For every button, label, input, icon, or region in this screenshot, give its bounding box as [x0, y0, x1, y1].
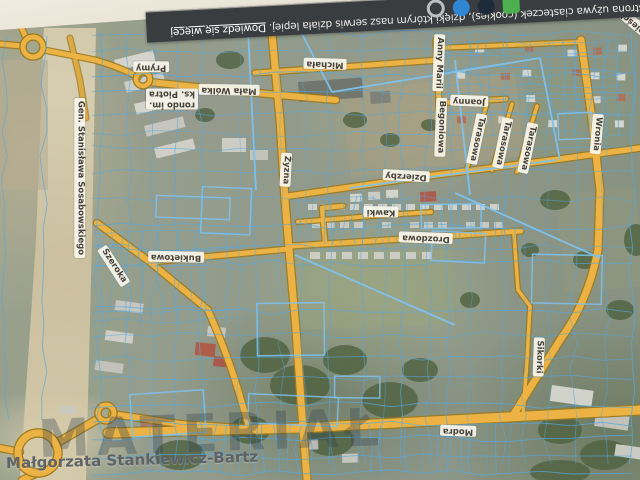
- screen-photo: Gen. Stanisława SosabowskiegoSzerokaBuki…: [0, 0, 640, 480]
- aerial-map[interactable]: Gen. Stanisława SosabowskiegoSzerokaBuki…: [0, 0, 640, 480]
- street-label-kawki: Kawki: [364, 206, 399, 217]
- green-app-icon[interactable]: [502, 0, 520, 14]
- street-label-michala: Michała: [303, 58, 346, 70]
- dark-circle-icon[interactable]: [477, 0, 495, 15]
- street-label-bukietowa: Bukietowa: [148, 251, 205, 262]
- street-label-gen-stanislawa-sosabowskiego: Gen. Stanisława Sosabowskiego: [75, 98, 86, 258]
- street-label-rondo-ks-piotra: rondo im.ks. Piotra: [146, 89, 198, 110]
- street-label-prymy: Prymy: [133, 62, 169, 73]
- street-label-mala-wolka: Mała Wólka: [198, 84, 259, 96]
- blue-circle-icon[interactable]: [452, 0, 470, 17]
- street-label-drozdowa: Drozdowa: [399, 232, 453, 244]
- street-label-sikorki: Sikorki: [533, 337, 545, 376]
- street-label-joanny: Joanny: [450, 95, 489, 107]
- ring-icon[interactable]: [426, 0, 445, 18]
- street-label-begoniowa: Begoniowa: [435, 98, 448, 157]
- cookie-learn-more-link[interactable]: Dowiedz się więcej: [170, 21, 266, 38]
- street-label-modra: Modra: [440, 425, 477, 437]
- street-label-anny-marii: Anny Marii: [433, 34, 445, 92]
- street-label-zyzna: Żyzna: [280, 153, 292, 188]
